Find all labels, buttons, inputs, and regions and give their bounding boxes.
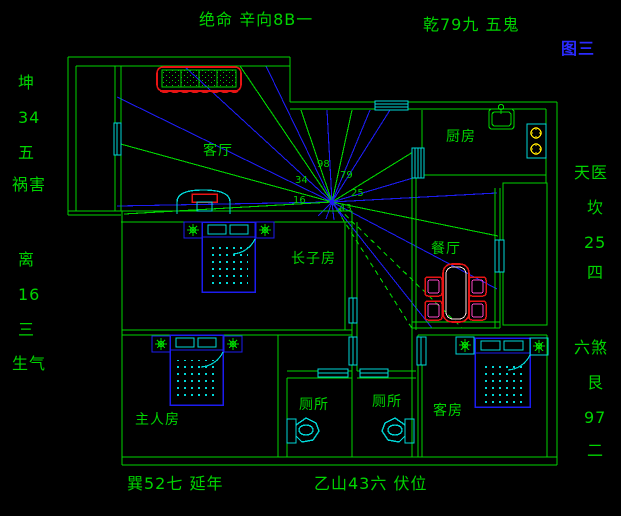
window-toilet-1 bbox=[318, 369, 348, 377]
kitchen-stove bbox=[527, 124, 546, 158]
window-top bbox=[375, 101, 408, 110]
compass-center bbox=[330, 200, 335, 205]
compass-ray bbox=[240, 66, 332, 202]
bed-master bbox=[170, 335, 223, 405]
walls bbox=[68, 57, 557, 465]
window-hall-2 bbox=[349, 337, 357, 365]
compass-rays bbox=[117, 66, 498, 330]
kitchen-door bbox=[412, 148, 424, 178]
nightstand-guest-right bbox=[530, 338, 548, 355]
window-guest-left bbox=[417, 337, 426, 365]
bed-eldest-son bbox=[202, 222, 255, 292]
window-toilet-2 bbox=[360, 369, 388, 377]
floor-plan-drawing bbox=[0, 0, 621, 516]
toilet-fixture-2 bbox=[382, 418, 414, 443]
window-dining-right bbox=[495, 240, 504, 272]
sofa bbox=[157, 67, 241, 93]
floor-plan-canvas[interactable]: 绝命 辛向8B一乾79九 五鬼图三坤34五祸害离16三生气天医坎25四六煞艮97… bbox=[0, 0, 621, 516]
compass-ray bbox=[117, 97, 332, 202]
compass-ray bbox=[332, 110, 352, 202]
toilet-fixture-1 bbox=[287, 418, 319, 443]
compass-ray bbox=[332, 152, 413, 202]
compass-ray bbox=[332, 110, 370, 202]
kitchen-sink bbox=[489, 105, 514, 130]
bed-guest bbox=[475, 338, 530, 407]
window-hall-1 bbox=[349, 298, 357, 323]
compass-ray bbox=[332, 202, 432, 328]
compass-ray bbox=[332, 202, 413, 330]
compass-ray bbox=[266, 66, 332, 202]
window-living-left bbox=[114, 123, 121, 155]
dining-table-set bbox=[425, 264, 486, 322]
compass-ray bbox=[332, 110, 390, 202]
